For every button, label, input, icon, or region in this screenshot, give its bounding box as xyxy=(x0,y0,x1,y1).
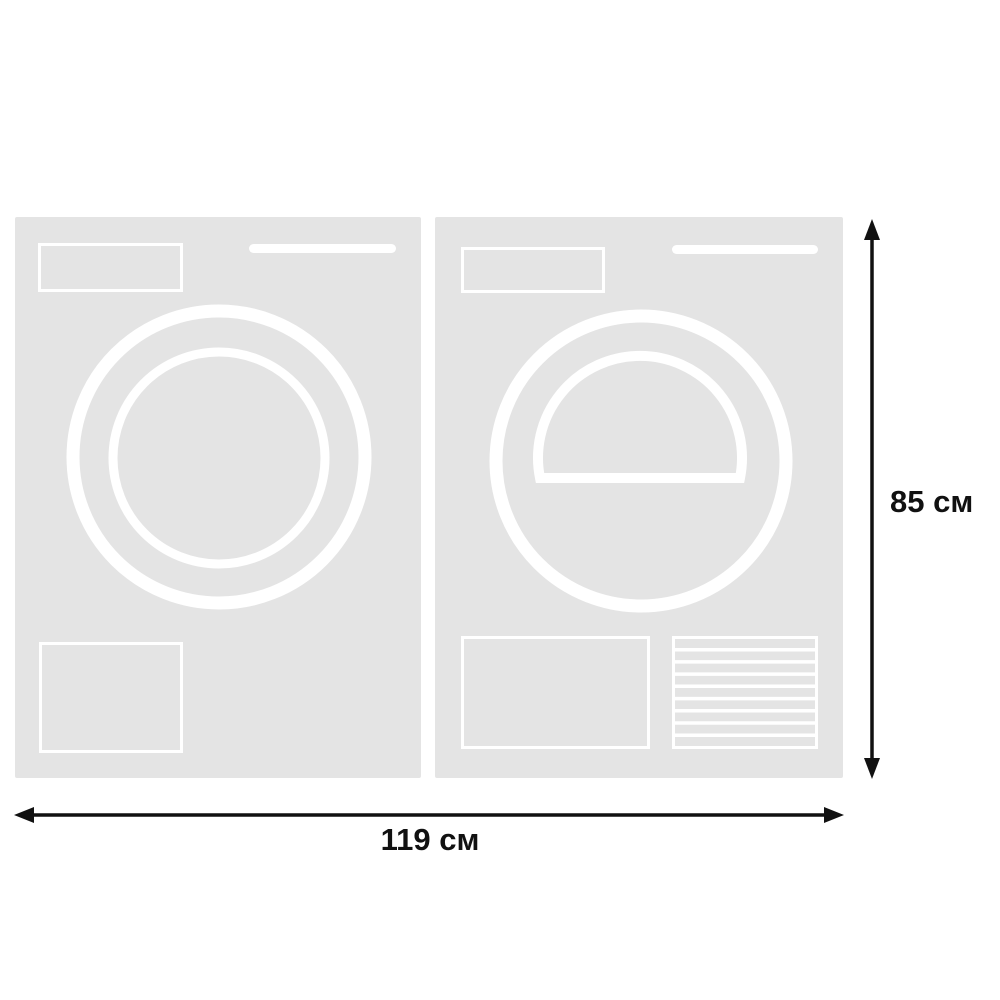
dimension-diagram: 119 см 85 см xyxy=(0,0,1000,1000)
height-dimension-arrow xyxy=(864,219,880,779)
washer-detergent-drawer xyxy=(249,244,396,253)
washing-machine-front-icon xyxy=(15,217,421,778)
dryer-top-bar xyxy=(672,245,818,254)
width-dimension-label: 119 см xyxy=(381,824,480,855)
height-dimension-label: 85 см xyxy=(890,486,973,517)
tumble-dryer-front-icon xyxy=(435,217,843,778)
width-dimension-arrow xyxy=(14,807,844,823)
